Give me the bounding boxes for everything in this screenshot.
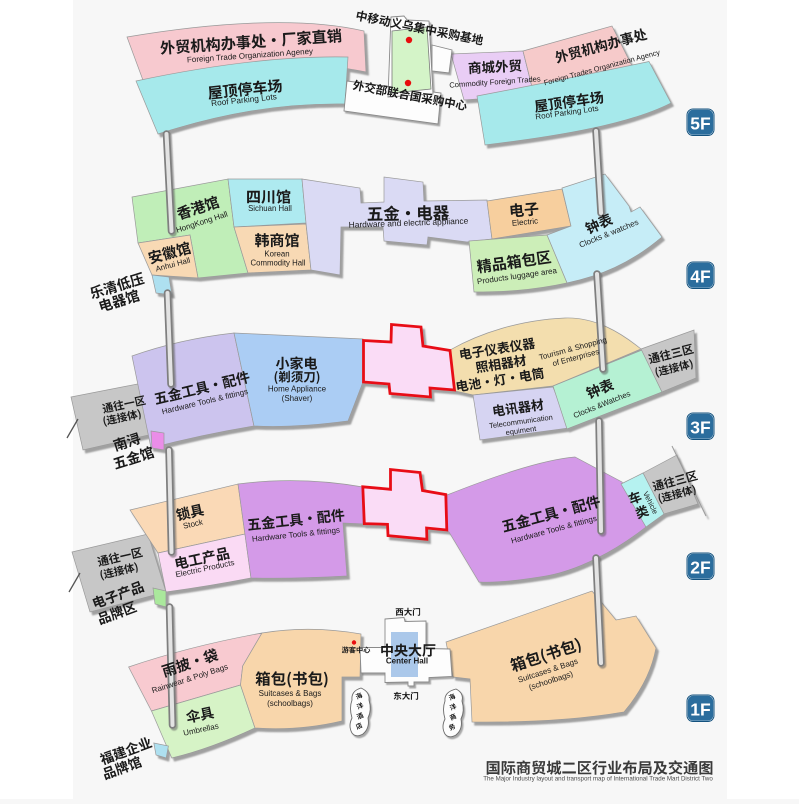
svg-text:Sichuan Hall: Sichuan Hall: [248, 204, 292, 213]
svg-text:(schoolbags): (schoolbags): [267, 699, 313, 708]
svg-text:Home Appliance: Home Appliance: [268, 385, 327, 394]
svg-text:2F: 2F: [690, 558, 711, 578]
svg-text:The Major Industry layout and: The Major Industry layout and transport …: [483, 776, 713, 783]
svg-text:Suitcases & Bags: Suitcases & Bags: [259, 689, 322, 698]
svg-text:4F: 4F: [690, 267, 711, 287]
svg-text:5F: 5F: [690, 114, 711, 134]
svg-text:Center Hall: Center Hall: [386, 657, 428, 666]
svg-text:1F: 1F: [690, 700, 711, 720]
svg-text:Korean: Korean: [264, 250, 289, 259]
svg-text:(Shaver): (Shaver): [282, 394, 313, 403]
svg-text:Commodity Hall: Commodity Hall: [250, 259, 305, 268]
svg-text:3F: 3F: [690, 418, 711, 438]
